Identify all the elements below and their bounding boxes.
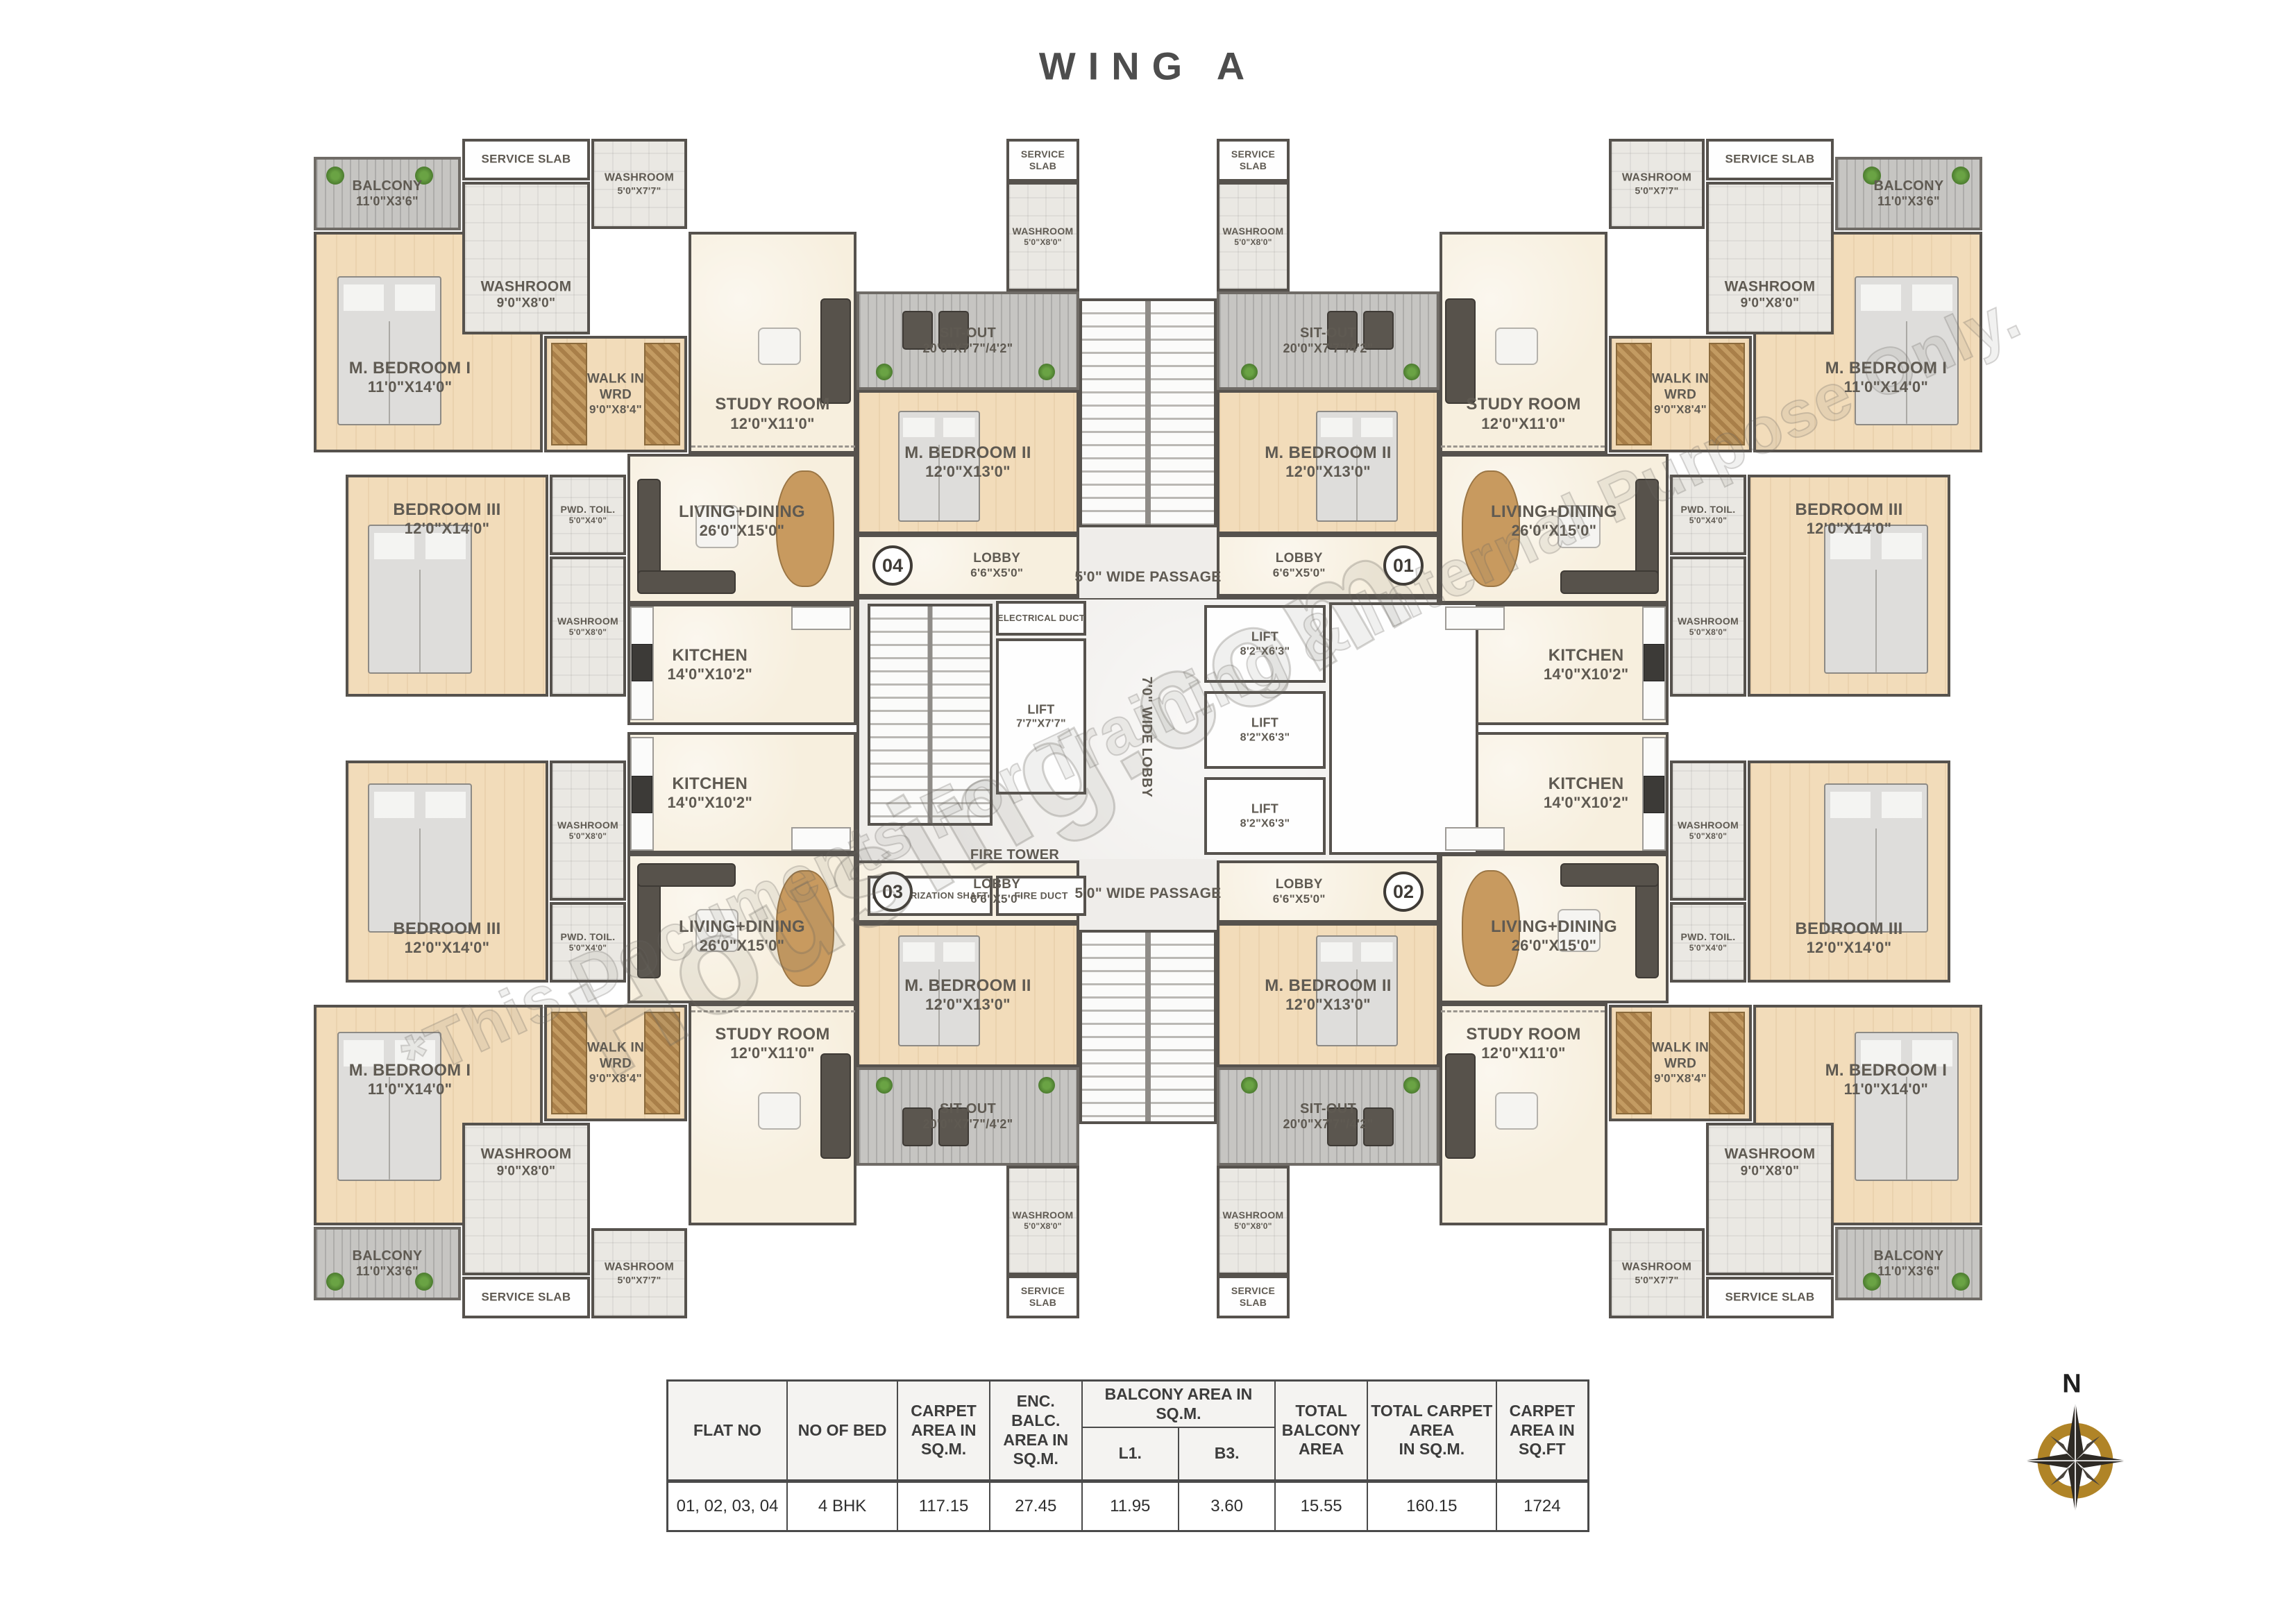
room-label: KITCHEN14'0"X10'2"	[1544, 773, 1629, 812]
room-label-name: M. BEDROOM II	[904, 443, 1031, 463]
room-label: M. BEDROOM I11'0"X14'0"	[1825, 358, 1948, 397]
room-label-name: PWD. TOIL.	[1681, 504, 1736, 516]
room-label: M. BEDROOM I11'0"X14'0"	[349, 1060, 471, 1099]
room-label-dims: 11'0"X14'0"	[349, 378, 471, 397]
room-label: LIVING+DINING26'0"X15'0"	[679, 917, 805, 955]
col-b3: B3.	[1179, 1427, 1275, 1481]
plant-icon	[1952, 1273, 1970, 1291]
room-label: LIVING+DINING26'0"X15'0"	[679, 502, 805, 541]
room-label-name: BALCONY	[353, 178, 423, 194]
counter-icon	[791, 827, 851, 851]
room-label: STUDY ROOM12'0"X11'0"	[1466, 394, 1580, 433]
room-label: PWD. TOIL.5'0"X4'0"	[1681, 931, 1736, 953]
room-label-dims: 12'0"X11'0"	[1466, 415, 1580, 434]
room-label-dims: 8'2"X6'3"	[1240, 645, 1290, 658]
room-label-dims: 5'0"X7'7"	[1622, 1274, 1691, 1286]
counter-icon	[1445, 606, 1505, 630]
room-label-name: LOBBY	[970, 550, 1023, 566]
room-label-dims: 6'6"X5'0"	[1273, 566, 1326, 581]
room-label-name: WALK IN WRD	[1652, 1039, 1709, 1071]
wardrobe-icon	[1616, 1012, 1652, 1114]
col-balcony-area-group: BALCONY AREA IN SQ.M.	[1082, 1381, 1276, 1428]
room-label-name: LIVING+DINING	[1491, 502, 1617, 522]
room-label-dims: 26'0"X15'0"	[679, 522, 805, 541]
room-label: M. BEDROOM II12'0"X13'0"	[1265, 976, 1392, 1014]
room-label-name: PWD. TOIL.	[1681, 931, 1736, 943]
room-label-dims: 11'0"X14'0"	[1825, 1080, 1948, 1099]
room-label-name: M. BEDROOM II	[1265, 443, 1392, 463]
room-label: SIT-OUT20'0"X7'7"/4'2"	[1283, 1101, 1373, 1132]
coffee-icon	[1495, 328, 1538, 365]
room-label-dims: 8'2"X6'3"	[1240, 817, 1290, 831]
room-label-dims: 14'0"X10'2"	[667, 794, 752, 813]
room-label: WASHROOM5'0"X8'0"	[1223, 226, 1284, 248]
room-label: WASHROOM5'0"X7'7"	[1622, 171, 1691, 197]
coffee-icon	[1495, 1092, 1538, 1130]
room-label: LOBBY6'6"X5'0"	[1273, 876, 1326, 907]
room-label: WASHROOM5'0"X7'7"	[605, 1261, 674, 1286]
room-label-dims: 9'0"X8'4"	[1652, 403, 1709, 418]
room-label-dims: 11'0"X3'6"	[1874, 194, 1944, 210]
room-label-name: SIT-OUT	[922, 1101, 1013, 1117]
room-label-dims: 12'0"X13'0"	[1265, 463, 1392, 482]
room-label-name: SIT-OUT	[1283, 325, 1373, 341]
room-label: BALCONY11'0"X3'6"	[1874, 178, 1944, 210]
room-label: BEDROOM III12'0"X14'0"	[1795, 500, 1902, 538]
bed-icon	[1824, 525, 1928, 674]
room-label-name: WALK IN WRD	[587, 371, 644, 402]
room-label-name: SERVICE SLAB	[1021, 1285, 1065, 1309]
room-label-dims: 9'0"X8'0"	[1725, 1163, 1816, 1179]
room-label-name: WASHROOM	[1223, 1209, 1284, 1221]
plant-icon	[326, 1273, 344, 1291]
room-label: SERVICE SLAB	[482, 153, 571, 167]
dash-icon	[1441, 1010, 1605, 1012]
room-label-name: STUDY ROOM	[715, 394, 829, 414]
room-label: LIFT8'2"X6'3"	[1240, 801, 1290, 830]
room-label-name: LIVING+DINING	[1491, 917, 1617, 937]
room-label-name: WASHROOM	[557, 615, 618, 627]
room-label-name: M. BEDROOM I	[349, 1060, 471, 1080]
wardrobe-icon	[644, 1012, 680, 1114]
room-label: SERVICE SLAB	[1725, 153, 1815, 167]
plant-icon	[1241, 1077, 1258, 1094]
room-label-name: WASHROOM	[481, 278, 572, 296]
compass-rose-icon	[2016, 1395, 2134, 1513]
room-label-name: SERVICE SLAB	[1725, 153, 1815, 167]
room-label: BEDROOM III12'0"X14'0"	[1795, 919, 1902, 958]
room-label: SERVICE SLAB	[1231, 148, 1275, 172]
col-l1: L1.	[1082, 1427, 1179, 1481]
room-label-name: KITCHEN	[667, 773, 752, 793]
room-label-dims: 12'0"X14'0"	[1795, 939, 1902, 958]
room-label-dims: 9'0"X8'4"	[1652, 1072, 1709, 1087]
room-label-name: WASHROOM	[1678, 819, 1739, 831]
room-label: WASHROOM5'0"X7'7"	[1622, 1261, 1691, 1286]
room-label-name: WASHROOM	[605, 171, 674, 185]
room-label-name: WALK IN WRD	[587, 1039, 644, 1071]
room-label-dims: 7'7"X7'7"	[1016, 717, 1066, 731]
flat-badge-04: 04	[872, 545, 913, 586]
sofa-icon	[1635, 479, 1659, 581]
room-label-dims: 12'0"X11'0"	[715, 1044, 829, 1063]
room-label-dims: 5'0"X8'0"	[557, 831, 618, 842]
room-label: STUDY ROOM12'0"X11'0"	[1466, 1024, 1580, 1063]
room-label-name: LIVING+DINING	[679, 502, 805, 522]
room-label-dims: 5'0"X8'0"	[1223, 237, 1284, 248]
room-label-name: STUDY ROOM	[1466, 394, 1580, 414]
room-label: LIFT8'2"X6'3"	[1240, 715, 1290, 744]
room-label-dims: 12'0"X13'0"	[904, 463, 1031, 482]
room-label: WASHROOM9'0"X8'0"	[1725, 278, 1816, 312]
room-label: SERVICE SLAB	[1021, 1285, 1065, 1309]
room-label-name: LIFT	[1240, 715, 1290, 731]
room-label-dims: 5'0"X8'0"	[1013, 237, 1074, 248]
room-label-dims: 5'0"X4'0"	[561, 516, 616, 526]
room-label-name: M. BEDROOM I	[1825, 358, 1948, 378]
flat-badge-01: 01	[1383, 545, 1424, 586]
room-label-dims: 12'0"X11'0"	[715, 415, 829, 434]
room-label: ELECTRICAL DUCT	[997, 613, 1085, 624]
plant-icon	[876, 364, 893, 380]
cell-l1: 11.95	[1082, 1481, 1179, 1531]
col-total-balcony: TOTAL BALCONY AREA	[1275, 1381, 1367, 1481]
cell-total-carpet: 160.15	[1367, 1481, 1496, 1531]
room-label-dims: 9'0"X8'0"	[481, 296, 572, 312]
core-strip-top	[1079, 527, 1217, 598]
room-label: WASHROOM5'0"X8'0"	[1013, 1209, 1074, 1232]
flat-badge-02: 02	[1383, 872, 1424, 912]
stove-icon	[1644, 776, 1664, 813]
room-label: PWD. TOIL.5'0"X4'0"	[1681, 504, 1736, 526]
room-label: LOBBY6'6"X5'0"	[970, 550, 1023, 581]
room-label: SERVICE SLAB	[1725, 1291, 1815, 1305]
stove-icon	[1644, 644, 1664, 681]
room-label-name: LIFT	[1016, 702, 1066, 717]
cell-b3: 3.60	[1179, 1481, 1275, 1531]
room-label: SIT-OUT20'0"X7'7"/4'2"	[922, 1101, 1013, 1132]
room-label: WASHROOM5'0"X8'0"	[557, 819, 618, 842]
stair-top	[1079, 298, 1217, 527]
room-label: SERVICE SLAB	[482, 1291, 571, 1305]
room-label-dims: 12'0"X11'0"	[1466, 1044, 1580, 1063]
sofa-icon	[1560, 570, 1659, 594]
room-label-name: WASHROOM	[1678, 615, 1739, 627]
room-label-dims: 8'2"X6'3"	[1240, 731, 1290, 745]
sofa-icon	[1445, 298, 1476, 404]
room-label-name: WASHROOM	[1622, 1261, 1691, 1275]
counter-icon	[1445, 827, 1505, 851]
bed-icon	[1855, 1032, 1959, 1181]
room-label: SERVICE SLAB	[1021, 148, 1065, 172]
cell-enc-balc: 27.45	[990, 1481, 1082, 1531]
core-label: FIRE TOWER	[970, 847, 1059, 863]
room-label: BALCONY11'0"X3'6"	[1874, 1248, 1944, 1280]
plant-icon	[1038, 1077, 1055, 1094]
cell-carpet: 117.15	[897, 1481, 990, 1531]
room-label-name: LIFT	[1240, 801, 1290, 817]
col-flat-no: FLAT NO	[668, 1381, 788, 1481]
room-label-name: LIFT	[1240, 629, 1290, 645]
room-label-dims: 11'0"X3'6"	[353, 194, 423, 210]
room-label-dims: 6'6"X5'0"	[970, 566, 1023, 581]
room-label-name: M. BEDROOM I	[1825, 1060, 1948, 1080]
room-label-name: WASHROOM	[1223, 226, 1284, 237]
room-label: WASHROOM5'0"X8'0"	[1223, 1209, 1284, 1232]
plant-icon	[1403, 1077, 1420, 1094]
compass-north-label: N	[2062, 1370, 2081, 1400]
room-label-name: WASHROOM	[481, 1146, 572, 1164]
room-label-name: KITCHEN	[667, 645, 752, 665]
plant-icon	[326, 167, 344, 185]
room-label-name: BALCONY	[1874, 178, 1944, 194]
room-label: BALCONY11'0"X3'6"	[353, 178, 423, 210]
sofa-icon	[1445, 1053, 1476, 1159]
room-label-name: LIVING+DINING	[679, 917, 805, 937]
room-label-name: WASHROOM	[557, 819, 618, 831]
room-label: WALK IN WRD9'0"X8'4"	[587, 371, 644, 417]
room-label-name: FIRE DUCT	[1014, 890, 1067, 901]
plant-icon	[1241, 364, 1258, 380]
room-label-dims: 20'0"X7'7"/4'2"	[922, 1117, 1013, 1132]
room-label-dims: 14'0"X10'2"	[1544, 794, 1629, 813]
room-label: BEDROOM III12'0"X14'0"	[393, 919, 500, 958]
room-label-name: SIT-OUT	[922, 325, 1013, 341]
bed-icon	[337, 1032, 441, 1181]
room-label-name: M. BEDROOM II	[904, 976, 1031, 996]
room-label-name: WASHROOM	[605, 1261, 674, 1275]
room-label-dims: 5'0"X8'0"	[1223, 1221, 1284, 1232]
room-label-dims: 12'0"X13'0"	[1265, 996, 1392, 1014]
room-label-name: WASHROOM	[1622, 171, 1691, 185]
room-label: WASHROOM5'0"X8'0"	[1678, 819, 1739, 842]
sofa-icon	[637, 570, 736, 594]
room-label-name: STUDY ROOM	[715, 1024, 829, 1044]
room-label-dims: 14'0"X10'2"	[667, 665, 752, 684]
room-label-dims: 5'0"X7'7"	[1622, 185, 1691, 196]
room-label-dims: 20'0"X7'7"/4'2"	[1283, 341, 1373, 357]
cell-no-of-bed: 4 BHK	[787, 1481, 897, 1531]
room-label-name: STUDY ROOM	[1466, 1024, 1580, 1044]
wardrobe-icon	[644, 343, 680, 445]
room-label: M. BEDROOM I11'0"X14'0"	[1825, 1060, 1948, 1099]
room-label: WALK IN WRD9'0"X8'4"	[1652, 1039, 1709, 1086]
bed-icon	[1824, 783, 1928, 933]
wardrobe-icon	[1709, 343, 1745, 445]
counter-icon	[791, 606, 851, 630]
flat-badge-number: 02	[1393, 881, 1414, 903]
flat-badge-number: 03	[882, 881, 903, 903]
flat-badge-03: 03	[872, 872, 913, 912]
room-label-dims: 12'0"X13'0"	[904, 996, 1031, 1014]
room-label-dims: 6'6"X5'0"	[1273, 892, 1326, 907]
room-label-dims: 12'0"X14'0"	[393, 520, 500, 538]
room-label: WALK IN WRD9'0"X8'4"	[587, 1039, 644, 1086]
room-label-dims: 20'0"X7'7"/4'2"	[922, 341, 1013, 357]
plant-icon	[1403, 364, 1420, 380]
room-label-name: LOBBY	[1273, 876, 1326, 892]
coffee-icon	[758, 328, 801, 365]
room-label: M. BEDROOM II12'0"X13'0"	[904, 443, 1031, 482]
room-label: WASHROOM9'0"X8'0"	[1725, 1146, 1816, 1180]
room-label: PWD. TOIL.5'0"X4'0"	[561, 931, 616, 953]
room-label-dims: 9'0"X8'4"	[587, 1072, 644, 1087]
room-label-name: LOBBY	[1273, 550, 1326, 566]
room-label: M. BEDROOM II12'0"X13'0"	[1265, 443, 1392, 482]
dash-icon	[691, 1010, 855, 1012]
room-label: KITCHEN14'0"X10'2"	[667, 645, 752, 683]
plant-icon	[876, 1077, 893, 1094]
sofa-icon	[820, 1053, 851, 1159]
room-label-name: SERVICE SLAB	[482, 153, 571, 167]
room-label-name: SERVICE SLAB	[1231, 148, 1275, 172]
room-label: M. BEDROOM I11'0"X14'0"	[349, 358, 471, 397]
room-label-dims: 9'0"X8'0"	[481, 1163, 572, 1179]
room-label-dims: 5'0"X4'0"	[1681, 516, 1736, 526]
room-label-dims: 12'0"X14'0"	[393, 939, 500, 958]
room-label-dims: 14'0"X10'2"	[1544, 665, 1629, 684]
room-label-name: PWD. TOIL.	[561, 931, 616, 943]
room-label: BEDROOM III12'0"X14'0"	[393, 500, 500, 538]
room-label-dims: 26'0"X15'0"	[679, 937, 805, 955]
room-label-dims: 5'0"X7'7"	[605, 1274, 674, 1286]
room-label: SERVICE SLAB	[1231, 1285, 1275, 1309]
table-row: 01, 02, 03, 04 4 BHK 117.15 27.45 11.95 …	[668, 1481, 1589, 1531]
room-label-dims: 26'0"X15'0"	[1491, 522, 1617, 541]
room-label: WASHROOM5'0"X7'7"	[605, 171, 674, 197]
stair-bottom	[1079, 930, 1217, 1124]
room-label: M. BEDROOM II12'0"X13'0"	[904, 976, 1031, 1014]
col-no-of-bed: NO OF BED	[787, 1381, 897, 1481]
room-label-name: PWD. TOIL.	[561, 504, 616, 516]
room-label-name: BEDROOM III	[1795, 919, 1902, 939]
sofa-icon	[637, 876, 661, 978]
room-label: LOBBY6'6"X5'0"	[1273, 550, 1326, 581]
room-label: LIVING+DINING26'0"X15'0"	[1491, 502, 1617, 541]
bed-icon	[1855, 276, 1959, 425]
room-label-dims: 5'0"X4'0"	[1681, 943, 1736, 953]
room-label-name: SERVICE SLAB	[482, 1291, 571, 1305]
room-label: WASHROOM5'0"X8'0"	[557, 615, 618, 638]
room-label: LIVING+DINING26'0"X15'0"	[1491, 917, 1617, 955]
stove-icon	[632, 644, 652, 681]
room-label-dims: 11'0"X3'6"	[353, 1264, 423, 1280]
bed-icon	[368, 525, 472, 674]
wardrobe-icon	[551, 343, 587, 445]
room-label: WASHROOM5'0"X8'0"	[1013, 226, 1074, 248]
room-label-dims: 11'0"X14'0"	[1825, 378, 1948, 397]
room-label: WASHROOM9'0"X8'0"	[481, 278, 572, 312]
coffee-icon	[758, 1092, 801, 1130]
room-label-name: ELECTRICAL DUCT	[997, 613, 1085, 624]
core-label: 5'0" WIDE PASSAGE	[1074, 568, 1221, 586]
stove-icon	[632, 776, 652, 813]
area-summary-table: FLAT NO NO OF BED CARPET AREA IN SQ.M. E…	[666, 1379, 1589, 1532]
col-carpet-sqft: CARPET AREA IN SQ.FT	[1496, 1381, 1589, 1481]
flat-badge-number: 01	[1393, 555, 1414, 577]
core-label: 7'0" WIDE LOBBY	[1138, 677, 1155, 797]
dash-icon	[1441, 445, 1605, 448]
sofa-icon	[637, 479, 661, 581]
room-label-name: SERVICE SLAB	[1725, 1291, 1815, 1305]
flat-badge-number: 04	[882, 555, 903, 577]
core-room	[1329, 602, 1478, 855]
room-label-name: SERVICE SLAB	[1021, 148, 1065, 172]
bed-icon	[368, 783, 472, 933]
cell-flat-no: 01, 02, 03, 04	[668, 1481, 788, 1531]
room-label-name: WALK IN WRD	[1652, 371, 1709, 402]
room-label-name: WASHROOM	[1725, 1146, 1816, 1164]
plant-icon	[1952, 167, 1970, 185]
core-label: 5'0" WIDE PASSAGE	[1074, 885, 1221, 903]
cell-carpet-sqft: 1724	[1496, 1481, 1589, 1531]
room-label-name: SIT-OUT	[1283, 1101, 1373, 1117]
room-label-name: WASHROOM	[1013, 226, 1074, 237]
room-label-name: BEDROOM III	[393, 919, 500, 939]
room-label-name: M. BEDROOM II	[1265, 976, 1392, 996]
wardrobe-icon	[551, 1012, 587, 1114]
room-label-name: KITCHEN	[1544, 645, 1629, 665]
col-total-carpet: TOTAL CARPET AREA IN SQ.M.	[1367, 1381, 1496, 1481]
room-label-name: BALCONY	[353, 1248, 423, 1264]
bed-icon	[337, 276, 441, 425]
room-label: LIFT7'7"X7'7"	[1016, 702, 1066, 731]
room-label-name: BALCONY	[1874, 1248, 1944, 1264]
room-label-name: WASHROOM	[1725, 278, 1816, 296]
room-label-dims: 26'0"X15'0"	[1491, 937, 1617, 955]
room-label: BALCONY11'0"X3'6"	[353, 1248, 423, 1280]
room-label-dims: 5'0"X8'0"	[557, 627, 618, 638]
room-label: FIRE DUCT	[1014, 890, 1067, 901]
room-label-dims: 11'0"X3'6"	[1874, 1264, 1944, 1280]
room-label: WASHROOM9'0"X8'0"	[481, 1146, 572, 1180]
room-label-dims: 9'0"X8'0"	[1725, 296, 1816, 312]
col-carpet-area: CARPET AREA IN SQ.M.	[897, 1381, 990, 1481]
plant-icon	[1038, 364, 1055, 380]
room-label: WALK IN WRD9'0"X8'4"	[1652, 371, 1709, 417]
room-label: KITCHEN14'0"X10'2"	[1544, 645, 1629, 683]
room-label: LIFT8'2"X6'3"	[1240, 629, 1290, 658]
room-label-dims: 9'0"X8'4"	[587, 403, 644, 418]
sofa-icon	[637, 863, 736, 887]
wardrobe-icon	[1616, 343, 1652, 445]
room-label: SIT-OUT20'0"X7'7"/4'2"	[922, 325, 1013, 357]
wardrobe-icon	[1709, 1012, 1745, 1114]
room-label-name: WASHROOM	[1013, 1209, 1074, 1221]
room-label-name: SERVICE SLAB	[1231, 1285, 1275, 1309]
room-label-dims: 5'0"X8'0"	[1678, 627, 1739, 638]
cell-total-balcony: 15.55	[1275, 1481, 1367, 1531]
room-label-dims: 11'0"X14'0"	[349, 1080, 471, 1099]
room-label: STUDY ROOM12'0"X11'0"	[715, 1024, 829, 1063]
room-label-dims: 12'0"X14'0"	[1795, 520, 1902, 538]
room-label: SIT-OUT20'0"X7'7"/4'2"	[1283, 325, 1373, 357]
room-label-dims: 5'0"X8'0"	[1013, 1221, 1074, 1232]
room-label: WASHROOM5'0"X8'0"	[1678, 615, 1739, 638]
room-label-dims: 5'0"X7'7"	[605, 185, 674, 196]
room-label: KITCHEN14'0"X10'2"	[667, 773, 752, 812]
room-label-name: M. BEDROOM I	[349, 358, 471, 378]
stair-main	[868, 604, 993, 826]
room-label-name: BEDROOM III	[1795, 500, 1902, 520]
room-label: PWD. TOIL.5'0"X4'0"	[561, 504, 616, 526]
room-label-name: KITCHEN	[1544, 773, 1629, 793]
sofa-icon	[820, 298, 851, 404]
sofa-icon	[1560, 863, 1659, 887]
room-label-name: BEDROOM III	[393, 500, 500, 520]
col-enc-balc-area: ENC. BALC. AREA IN SQ.M.	[990, 1381, 1082, 1481]
room-label-dims: 5'0"X4'0"	[561, 943, 616, 953]
